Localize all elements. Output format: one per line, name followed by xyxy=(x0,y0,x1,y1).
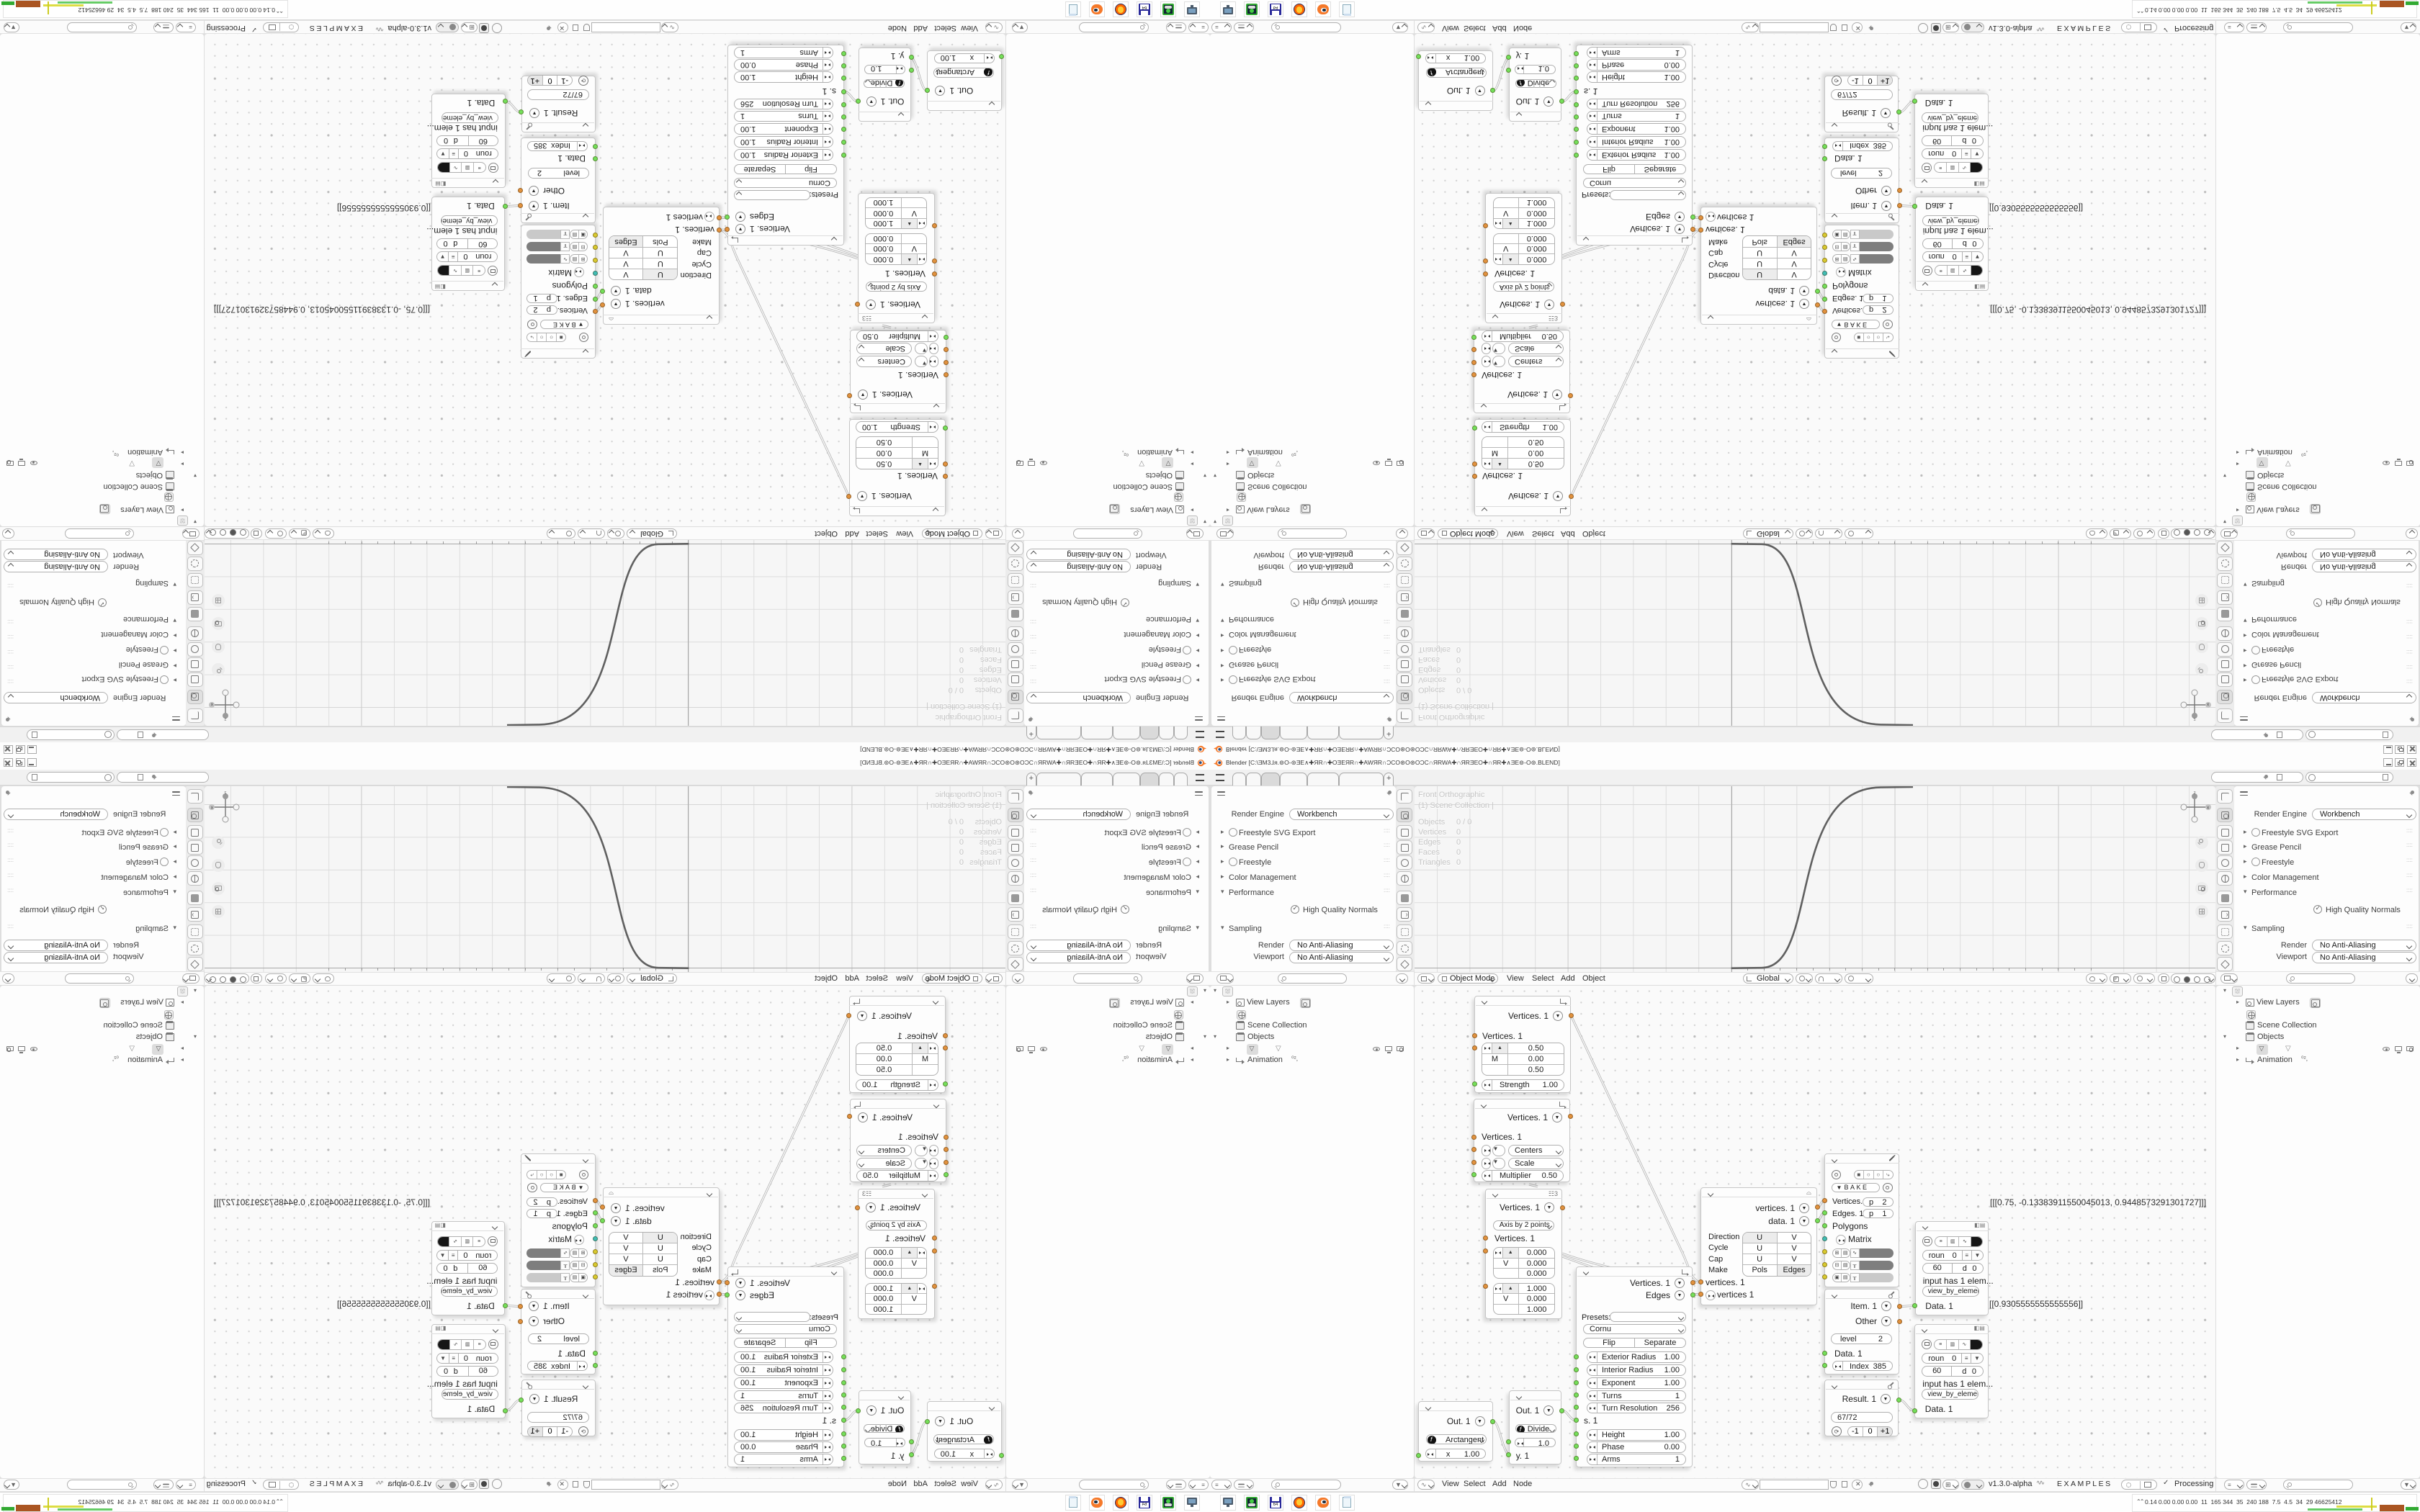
svg-text:z: z xyxy=(224,716,226,721)
svg-text:x: x xyxy=(210,702,213,707)
svg-text:z: z xyxy=(2194,716,2196,721)
svg-text:z: z xyxy=(224,791,226,796)
svg-text:z: z xyxy=(2194,791,2196,796)
